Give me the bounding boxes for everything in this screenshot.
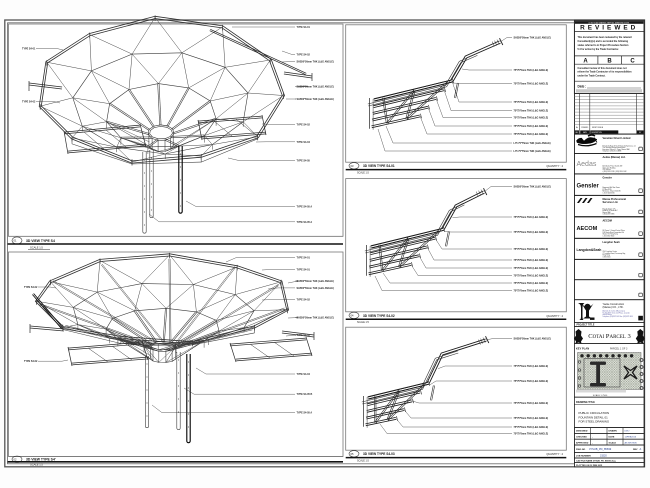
svg-text:SHS50*50mm THK (L&G ANGLE): SHS50*50mm THK (L&G ANGLE) xyxy=(297,280,334,283)
svg-text:PO Box 6135: PO Box 6135 xyxy=(603,189,612,191)
svg-text:TYPE S4-02: TYPE S4-02 xyxy=(22,101,36,104)
svg-text:75*75*5mm THK (L&G ANGLE): 75*75*5mm THK (L&G ANGLE) xyxy=(514,417,549,420)
svg-text:75*75*5mm THK (L&G ANGLE): 75*75*5mm THK (L&G ANGLE) xyxy=(514,433,549,436)
svg-text:TYPE S4-01: TYPE S4-01 xyxy=(22,48,36,51)
svg-text:3D VIEW TYPE S4-02: 3D VIEW TYPE S4-02 xyxy=(363,314,395,318)
svg-text:75*75*5mm THK (L&G ANGLE): 75*75*5mm THK (L&G ANGLE) xyxy=(514,380,549,383)
svg-text:L75 75*75mm THK (L&G ANGLE): L75 75*75mm THK (L&G ANGLE) xyxy=(514,150,551,153)
svg-text:A: A xyxy=(640,447,642,451)
svg-text:Consultant(s)(s) and is accord: Consultant(s)(s) and is accorded the fol… xyxy=(578,40,629,43)
svg-text:Services Ltd.: Services Ltd. xyxy=(603,201,619,204)
svg-text:China Law Building: China Law Building xyxy=(603,167,616,169)
svg-text:Aedas (Macau) Ltd.: Aedas (Macau) Ltd. xyxy=(603,156,626,159)
svg-text:KEY PLAN: KEY PLAN xyxy=(576,347,589,351)
svg-text:TYPE S4-02: TYPE S4-02 xyxy=(297,124,311,127)
svg-text:CAD FILE NAME 3YSUB_PD_85699.d: CAD FILE NAME 3YSUB_PD_85699.dwg xyxy=(576,459,616,462)
svg-text:75*75*5mm THK (L&G ANGLE): 75*75*5mm THK (L&G ANGLE) xyxy=(514,267,549,270)
svg-text:TYPE S4-02: TYPE S4-02 xyxy=(297,54,311,57)
svg-text:TYPE S4-02: TYPE S4-02 xyxy=(297,299,311,302)
svg-text:AECOM: AECOM xyxy=(603,220,612,223)
svg-text:12FEB15: 12FEB15 xyxy=(581,127,588,129)
svg-text:Gensler: Gensler xyxy=(603,177,612,180)
svg-text:75*75*5mm THK (L&G ANGLE): 75*75*5mm THK (L&G ANGLE) xyxy=(514,110,549,113)
svg-text:FOR STEEL DRAWING: FOR STEEL DRAWING xyxy=(579,420,610,424)
svg-text:BY: BY xyxy=(639,132,641,134)
svg-text:31520: 31520 xyxy=(600,455,607,458)
svg-text:This document has been reviewe: This document has been reviewed by the r… xyxy=(578,36,632,39)
svg-text:QUANTITY : 4: QUANTITY : 4 xyxy=(546,164,563,168)
svg-text:3D VIEW TYPE S4-03: 3D VIEW TYPE S4-03 xyxy=(363,452,395,456)
svg-text:TYPE S4-05 A: TYPE S4-05 A xyxy=(297,412,313,415)
svg-text:REVIEWED: REVIEWED xyxy=(580,25,638,32)
svg-text:TYPE S4-01: TYPE S4-01 xyxy=(297,26,311,29)
svg-text:APPROVED: APPROVED xyxy=(576,441,589,444)
svg-text:FIRST ISSUE: FIRST ISSUE xyxy=(592,127,604,129)
svg-text:TYPE S4-04: TYPE S4-04 xyxy=(297,141,311,144)
svg-text:SHS50*50mm THK (L&G ANGLE): SHS50*50mm THK (L&G ANGLE) xyxy=(514,186,551,189)
svg-text:(Macau) CO., LTD.: (Macau) CO., LTD. xyxy=(603,306,624,309)
svg-text:75*75*5mm THK (L&G ANGLE): 75*75*5mm THK (L&G ANGLE) xyxy=(514,402,549,405)
svg-text:TYPE S4-05 A: TYPE S4-05 A xyxy=(297,221,313,224)
svg-text:SCALE: SCALE xyxy=(609,441,617,444)
svg-text:TYPE S4-05 B: TYPE S4-05 B xyxy=(297,393,313,396)
svg-text:TYPE S4-01: TYPE S4-01 xyxy=(297,257,311,260)
svg-text:SHS50*50mm THK (L&G ANGLE): SHS50*50mm THK (L&G ANGLE) xyxy=(297,98,334,101)
svg-text:TYPE S4-01: TYPE S4-01 xyxy=(297,268,311,271)
svg-text:75*75*5mm THK (L&G ANGLE): 75*75*5mm THK (L&G ANGLE) xyxy=(514,282,549,285)
svg-text:75*75*5mm THK (L&G ANGLE): 75*75*5mm THK (L&G ANGLE) xyxy=(514,259,549,262)
svg-text:75*75*5mm THK (L&G ANGLE): 75*75*5mm THK (L&G ANGLE) xyxy=(514,290,549,293)
svg-text:3D VIEW TYPE S4-01: 3D VIEW TYPE S4-01 xyxy=(363,164,395,168)
svg-text:Langdon&Seah: Langdon&Seah xyxy=(577,248,602,252)
svg-text:AS SHOWN: AS SHOWN xyxy=(625,441,637,444)
svg-text:TYPE S4-05 A: TYPE S4-05 A xyxy=(297,206,313,209)
svg-text:75*75*5mm THK (L&G ANGLE): 75*75*5mm THK (L&G ANGLE) xyxy=(514,83,549,86)
svg-text:75*75*5mm THK (L&G ANGLE): 75*75*5mm THK (L&G ANGLE) xyxy=(514,275,549,278)
svg-text:SHS50*50mm THK (L&G ANGLE): SHS50*50mm THK (L&G ANGLE) xyxy=(514,338,551,341)
svg-text:Consultant review of this docu: Consultant review of this document does … xyxy=(578,67,627,70)
svg-text:SHS50*50mm THK (L&G ANGLE): SHS50*50mm THK (L&G ANGLE) xyxy=(297,317,334,320)
svg-text:C: C xyxy=(630,59,635,65)
svg-text:CHECKED: CHECKED xyxy=(576,437,587,439)
svg-text:REV: REV xyxy=(633,449,638,451)
svg-text:A: A xyxy=(583,59,588,65)
svg-text:DESIGNED: DESIGNED xyxy=(576,431,588,433)
svg-text:SCALE 1:5: SCALE 1:5 xyxy=(357,321,369,324)
svg-text:Langdon Seah: Langdon Seah xyxy=(603,241,621,244)
svg-text:3D VIEW TYPE S4: 3D VIEW TYPE S4 xyxy=(26,239,55,243)
svg-text:TYPE S4-02: TYPE S4-02 xyxy=(24,286,38,289)
svg-text:TYPE S4-04: TYPE S4-04 xyxy=(297,373,311,376)
svg-text:relieve the Trade Contractor o: relieve the Trade Contractor of its resp… xyxy=(578,71,633,74)
svg-text:DWG NO: DWG NO xyxy=(576,449,586,451)
svg-text:LWO: LWO xyxy=(625,431,630,433)
svg-text:Date :: Date : xyxy=(578,84,587,88)
svg-text:75*75*5mm THK (L&G ANGLE): 75*75*5mm THK (L&G ANGLE) xyxy=(514,426,549,429)
svg-text:B: B xyxy=(607,59,612,65)
svg-text:PLOTTED ON 12 FEB 2015: PLOTTED ON 12 FEB 2015 xyxy=(576,465,603,467)
svg-text:TYPE S4-05: TYPE S4-05 xyxy=(297,159,311,162)
svg-text:status referred to in Projec: status referred to in Project Procedure … xyxy=(578,44,630,47)
svg-text:DRAWING TITLE: DRAWING TITLE xyxy=(576,401,595,404)
svg-text:JOB NUMBER: JOB NUMBER xyxy=(576,456,591,458)
svg-text:3YSUB_PD_85699: 3YSUB_PD_85699 xyxy=(589,447,612,451)
svg-text:75*75*5mm THK (L&G ANGLE): 75*75*5mm THK (L&G ANGLE) xyxy=(514,231,549,234)
svg-text:75*75*5mm THK (L&G ANGLE): 75*75*5mm THK (L&G ANGLE) xyxy=(514,69,549,72)
svg-text:QUANTITY : 4: QUANTITY : 4 xyxy=(546,314,563,318)
svg-text:SHS50*50mm THK (L&G ANGLE): SHS50*50mm THK (L&G ANGLE) xyxy=(297,61,334,64)
svg-text:Venetian Orient Limited: Venetian Orient Limited xyxy=(603,137,631,140)
svg-text:75*75*5mm THK (L&G ANGLE): 75*75*5mm THK (L&G ANGLE) xyxy=(514,101,549,104)
svg-text:75*75*5mm THK (L&G ANGLE): 75*75*5mm THK (L&G ANGLE) xyxy=(514,125,549,128)
svg-text:SHS50*50mm THK (L&G ANGLE): SHS50*50mm THK (L&G ANGLE) xyxy=(514,37,551,40)
svg-text:SCALE 1:5: SCALE 1:5 xyxy=(30,245,43,249)
svg-text:75*75*5mm THK (L&G ANGLE): 75*75*5mm THK (L&G ANGLE) xyxy=(514,216,549,219)
svg-text:L75 75*75mm THK (L&G ANGLE): L75 75*75mm THK (L&G ANGLE) xyxy=(514,142,551,145)
svg-text:DRAWN: DRAWN xyxy=(609,430,618,433)
svg-text:SCALE 1:7500: SCALE 1:7500 xyxy=(593,394,608,397)
svg-text:QUANTITY : 4: QUANTITY : 4 xyxy=(546,452,563,456)
svg-text:Gensler: Gensler xyxy=(577,184,600,190)
svg-text:5.4 for action by the Trade Co: 5.4 for action by the Trade Contractor. xyxy=(578,48,620,51)
svg-text:75*75*5mm THK (L&G ANGLE): 75*75*5mm THK (L&G ANGLE) xyxy=(514,248,549,251)
svg-text:SCALE 1:5: SCALE 1:5 xyxy=(357,459,369,462)
svg-text:DATE: DATE xyxy=(609,436,615,439)
svg-text:21/F, Macau: 21/F, Macau xyxy=(603,169,611,171)
svg-text:SCALE 1:5: SCALE 1:5 xyxy=(30,462,43,466)
svg-text:Rua de Xangai 175: Rua de Xangai 175 xyxy=(603,208,616,210)
svg-text:TYPE S4-02: TYPE S4-02 xyxy=(24,360,38,363)
svg-text:SCALE 1:5: SCALE 1:5 xyxy=(357,171,369,174)
svg-text:Telephone: (853)2875 3618 Fax: Telephone: (853)2875 3618 Fax: (853)2875… xyxy=(603,316,634,318)
svg-text:under the Trade Contract.: under the Trade Contract. xyxy=(578,75,606,78)
svg-text:Aedas: Aedas xyxy=(577,161,597,168)
svg-text:AECOM: AECOM xyxy=(577,226,598,232)
svg-text:75*75*5mm THK (L&G ANGLE): 75*75*5mm THK (L&G ANGLE) xyxy=(514,117,549,120)
svg-text:SHS50*50mm THK (L&G ANGLE): SHS50*50mm THK (L&G ANGLE) xyxy=(297,287,334,290)
svg-text:DESCRIPTION: DESCRIPTION xyxy=(592,132,602,134)
svg-text:SHS50*50mm THK (L&G ANGLE): SHS50*50mm THK (L&G ANGLE) xyxy=(297,86,334,89)
svg-text:PARCEL 1 OF 3: PARCEL 1 OF 3 xyxy=(610,348,628,351)
svg-text:COTAI PARCEL 3: COTAI PARCEL 3 xyxy=(588,333,631,340)
svg-text:12FEB2015: 12FEB2015 xyxy=(625,437,637,439)
svg-text:REV: REV xyxy=(575,132,578,134)
svg-text:Telephone: (853) 81 118888: Telephone: (853) 81 118888 xyxy=(603,151,622,153)
svg-text:Hong Kong: Hong Kong xyxy=(603,255,611,257)
svg-text:75*75*5mm THK (L&G ANGLE): 75*75*5mm THK (L&G ANGLE) xyxy=(514,133,549,136)
svg-text:75*75*5mm THK (L&G ANGLE): 75*75*5mm THK (L&G ANGLE) xyxy=(514,365,549,368)
